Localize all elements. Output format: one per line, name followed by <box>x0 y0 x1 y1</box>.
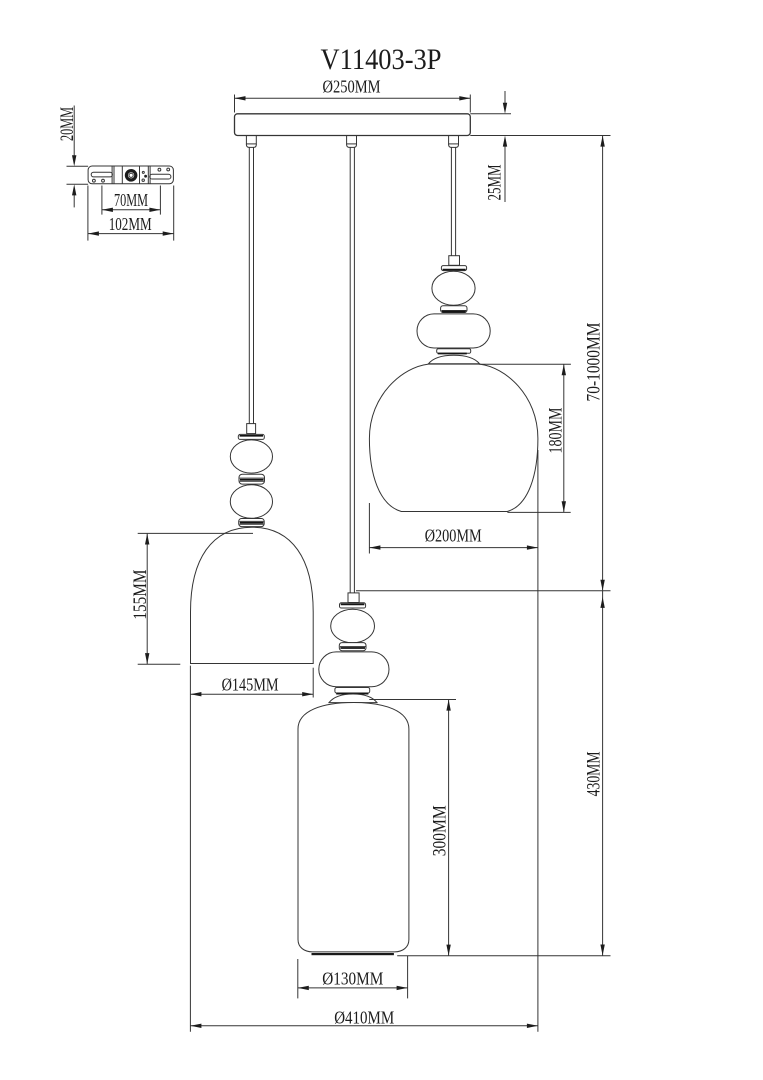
svg-text:Ø410MM: Ø410MM <box>334 1007 394 1027</box>
svg-text:430MM: 430MM <box>583 751 604 796</box>
svg-text:180MM: 180MM <box>546 407 567 453</box>
svg-text:25MM: 25MM <box>485 164 506 200</box>
svg-text:Ø130MM: Ø130MM <box>322 969 383 989</box>
svg-text:V11403-3P: V11403-3P <box>321 43 442 76</box>
svg-text:Ø145MM: Ø145MM <box>222 674 279 694</box>
svg-text:70-1000MM: 70-1000MM <box>583 322 604 401</box>
svg-text:70MM: 70MM <box>114 190 148 210</box>
svg-text:102MM: 102MM <box>109 214 152 234</box>
svg-text:300MM: 300MM <box>429 805 450 856</box>
svg-text:Ø250MM: Ø250MM <box>323 77 381 97</box>
svg-text:20MM: 20MM <box>57 107 78 141</box>
svg-text:Ø200MM: Ø200MM <box>425 526 482 546</box>
svg-text:155MM: 155MM <box>130 570 151 620</box>
